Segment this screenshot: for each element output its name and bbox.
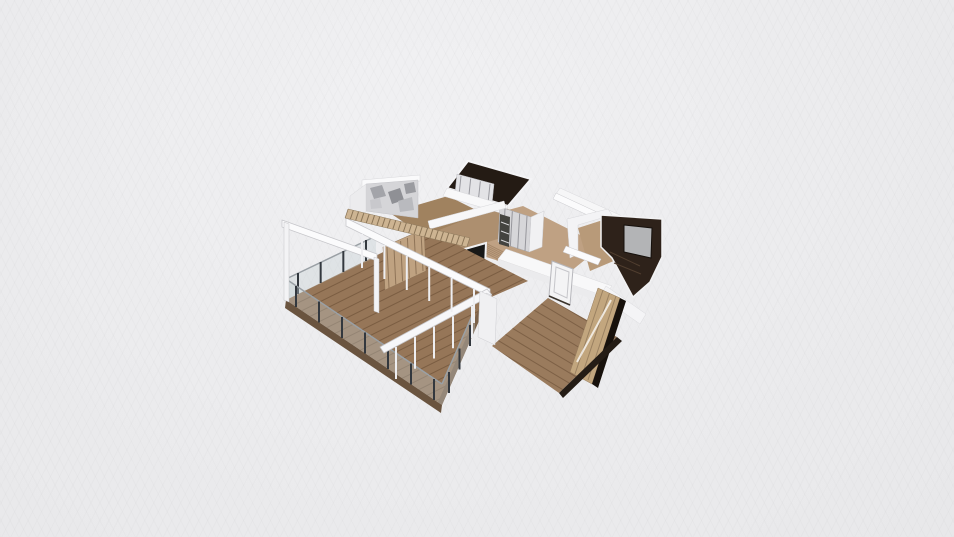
pergola-post-mid bbox=[374, 257, 379, 313]
wardrobe-side-panel bbox=[529, 211, 544, 252]
floorplan-3d-render bbox=[0, 0, 954, 537]
pergola-post-west bbox=[284, 222, 289, 302]
marble-vein-4 bbox=[370, 198, 382, 209]
corridor-wall-segment bbox=[478, 291, 497, 345]
bedroom-door bbox=[549, 261, 573, 305]
wardrobe-shelf-unit bbox=[499, 214, 510, 247]
marble-vein-5 bbox=[404, 182, 416, 194]
floorplan-viewport bbox=[0, 0, 954, 537]
media-tv-screen bbox=[624, 225, 652, 258]
